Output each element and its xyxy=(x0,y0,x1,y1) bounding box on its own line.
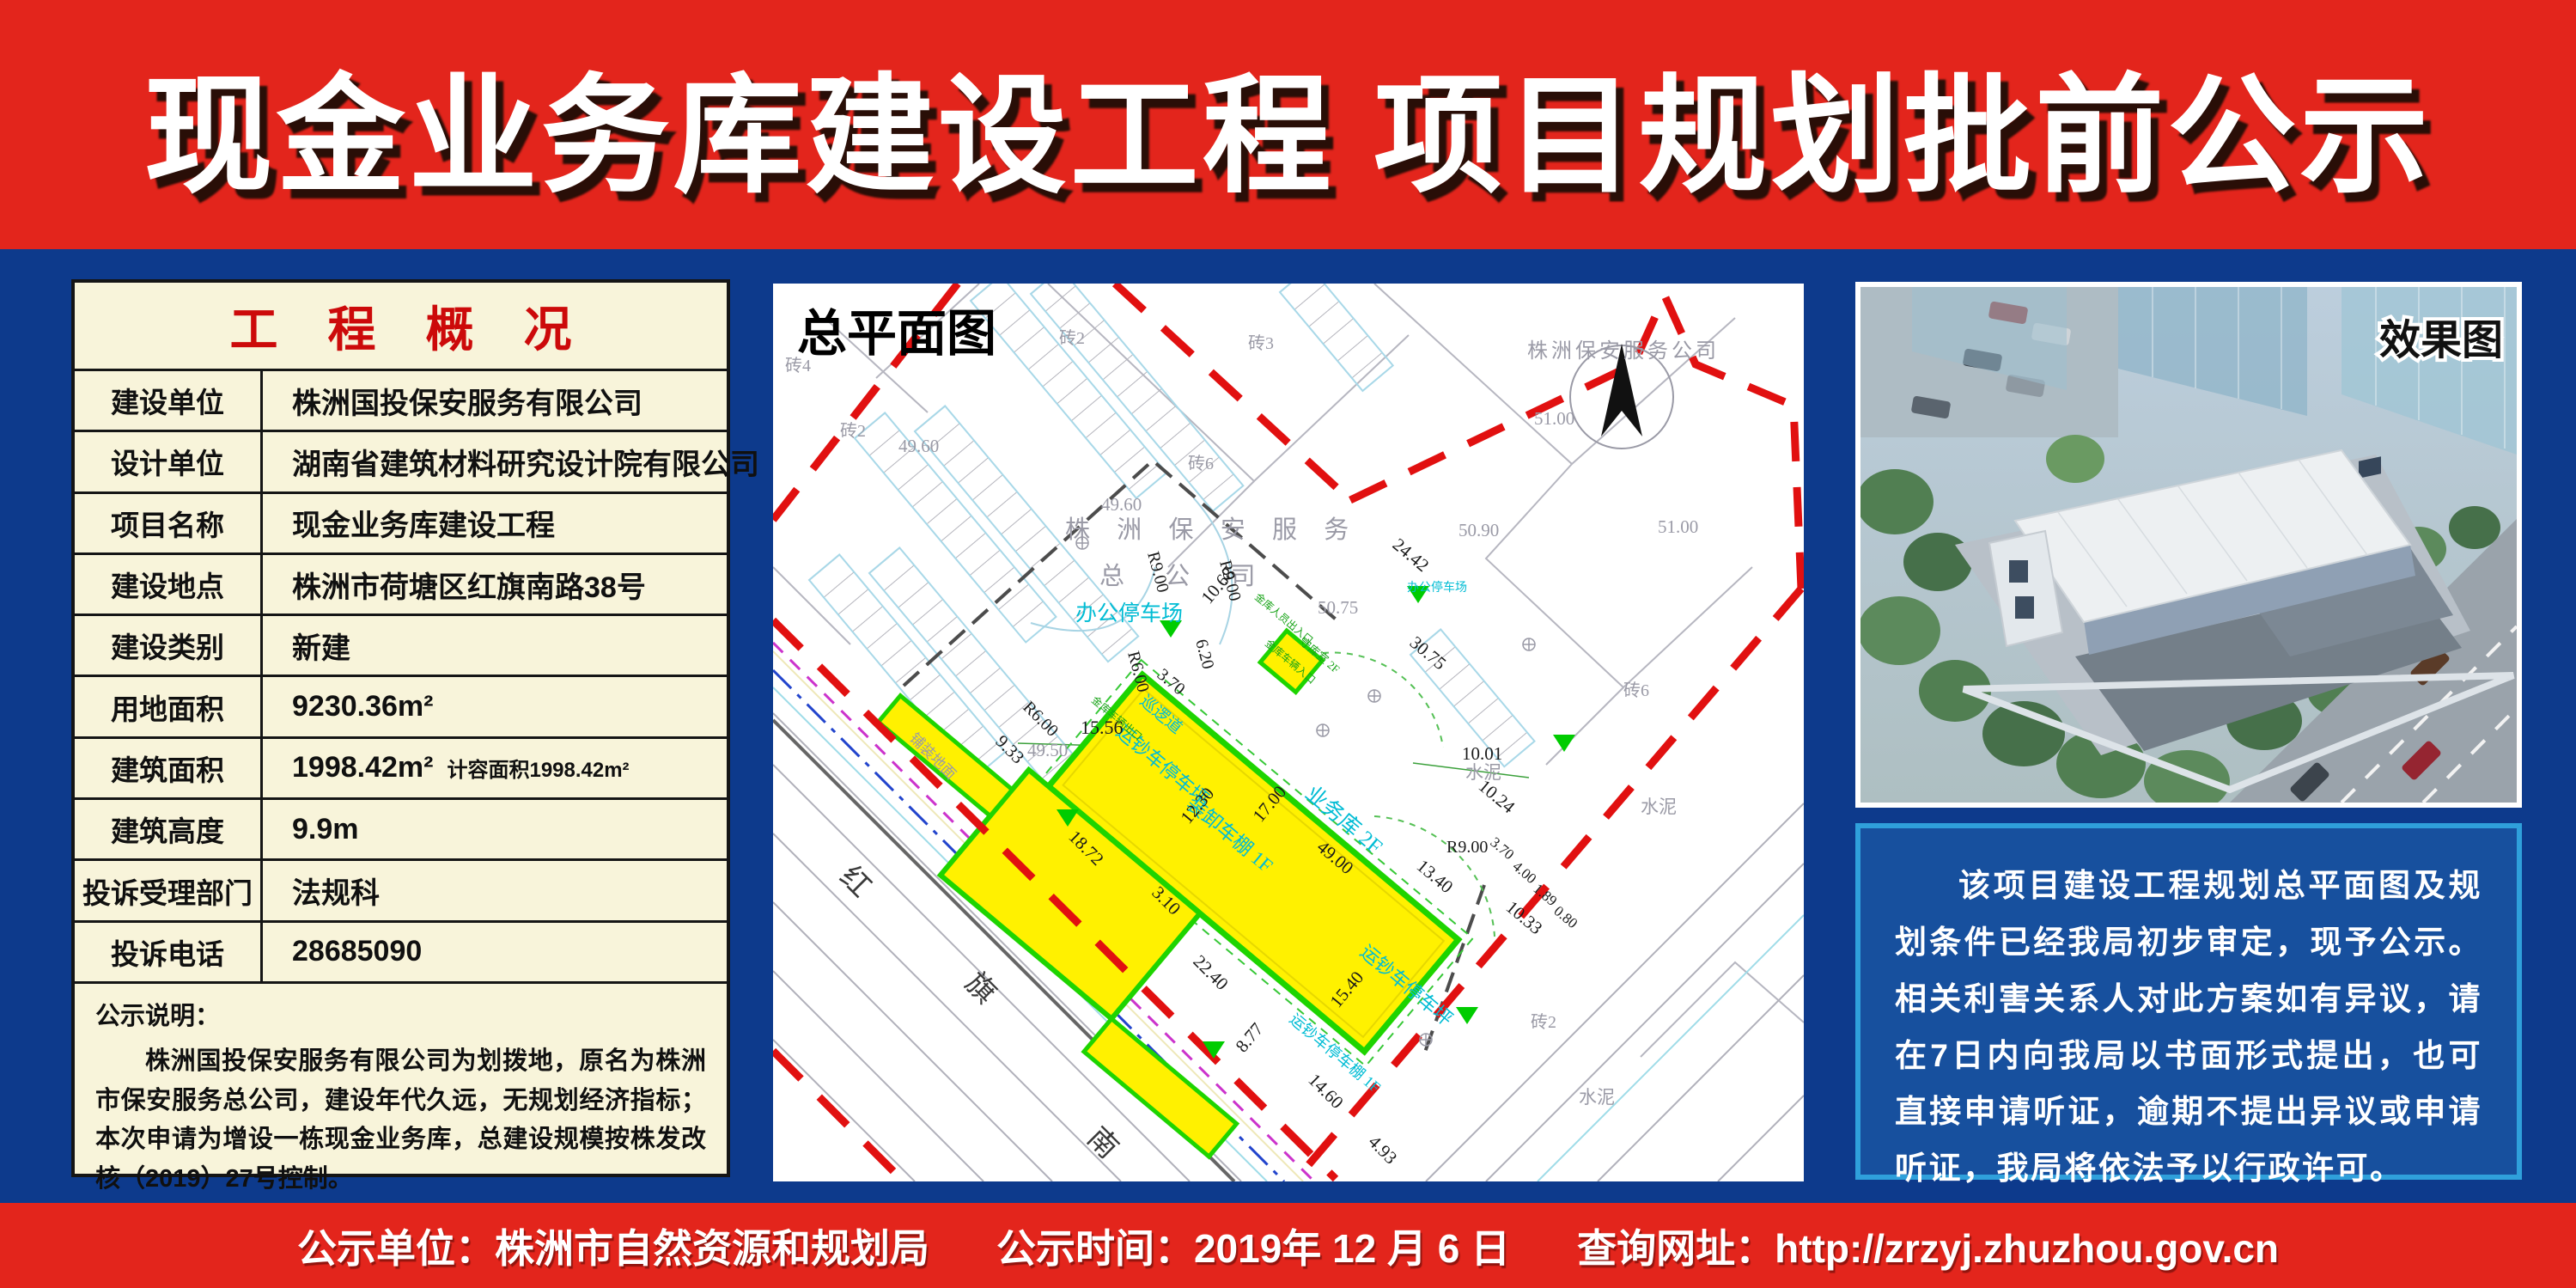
note-body: 株洲国投保安服务有限公司为划拨地，原名为株洲市保安服务总公司，建设年代久远，无规… xyxy=(95,1042,706,1199)
footer-unit-value: 株洲市自然资源和规划局 xyxy=(495,1226,929,1271)
row-value: 1998.42m²计容面积1998.42m² xyxy=(263,739,727,797)
floor-area-note: 计容面积1998.42m² xyxy=(447,753,629,783)
row-value: 法规科 xyxy=(263,861,727,919)
public-note: 公示说明： 株洲国投保安服务有限公司为划拨地，原名为株洲市保安服务总公司，建设年… xyxy=(75,984,727,1208)
row-label: 投诉受理部门 xyxy=(75,861,263,919)
footer-time: 公示时间：2019年 12 月 6 日 xyxy=(996,1218,1510,1274)
rendering-panel: 效果图 xyxy=(1855,282,2522,808)
row-value: 湖南省建筑材料研究设计院有限公司 xyxy=(263,432,759,491)
table-title: 工 程 概 况 xyxy=(75,283,727,371)
svg-text:51.00: 51.00 xyxy=(1658,516,1698,537)
approval-notice-box: 该项目建设工程规划总平面图及规划条件已经我局初步审定，现予公示。相关利害关系人对… xyxy=(1855,823,2522,1180)
svg-text:总 公 司: 总 公 司 xyxy=(1099,562,1273,590)
row-label: 建设地点 xyxy=(75,555,263,613)
svg-text:49.60: 49.60 xyxy=(898,436,939,456)
table-row: 建筑面积 1998.42m²计容面积1998.42m² xyxy=(75,739,727,800)
header-banner: 现金业务库建设工程 项目规划批前公示 xyxy=(0,0,2576,249)
site-plan-panel: 总平面图 株洲保安服务公司 株 洲 保 安 服 务 总 公 司 办公停车场 办公… xyxy=(773,284,1804,1181)
svg-text:砖3: 砖3 xyxy=(1248,333,1274,353)
rendering-title: 效果图 xyxy=(2379,318,2503,363)
row-label: 建设单位 xyxy=(75,371,263,430)
project-overview-table: 工 程 概 况 建设单位 株洲国投保安服务有限公司 设计单位 湖南省建筑材料研究… xyxy=(71,279,730,1177)
footer-url: 查询网址：http://zrzyj.zhuzhou.gov.cn xyxy=(1577,1218,2279,1274)
svg-text:砖2: 砖2 xyxy=(840,421,866,441)
table-row: 建设类别 新建 xyxy=(75,616,727,677)
row-value: 新建 xyxy=(263,616,727,675)
footer-time-value: 2019年 12 月 6 日 xyxy=(1194,1226,1510,1271)
row-value: 9.9m xyxy=(263,800,727,858)
note-title: 公示说明： xyxy=(95,998,706,1037)
svg-text:49.50: 49.50 xyxy=(1027,740,1068,760)
row-label: 建筑高度 xyxy=(75,800,263,858)
svg-text:水泥: 水泥 xyxy=(1579,1087,1615,1108)
svg-text:49.60: 49.60 xyxy=(1101,494,1142,515)
svg-text:办公停车场: 办公停车场 xyxy=(1407,580,1467,595)
table-row: 项目名称 现金业务库建设工程 xyxy=(75,494,727,555)
footer-time-label: 公示时间： xyxy=(996,1226,1194,1271)
row-value: 9230.36m² xyxy=(263,677,727,736)
table-row: 投诉电话 28685090 xyxy=(75,923,727,984)
svg-text:水泥: 水泥 xyxy=(1641,797,1677,817)
notice-body: 该项目建设工程规划总平面图及规划条件已经我局初步审定，现予公示。相关利害关系人对… xyxy=(1895,858,2482,1197)
floor-area-value: 1998.42m² xyxy=(292,751,433,784)
svg-text:砖2: 砖2 xyxy=(1059,328,1085,348)
svg-text:株洲保安服务公司: 株洲保安服务公司 xyxy=(1527,339,1720,363)
page-title: 现金业务库建设工程 项目规划批前公示 xyxy=(144,32,2433,218)
svg-text:10.01: 10.01 xyxy=(1462,743,1502,764)
row-value: 现金业务库建设工程 xyxy=(263,494,727,552)
rendering-image: 效果图 xyxy=(1860,287,2517,803)
row-value: 28685090 xyxy=(263,923,727,981)
table-row: 用地面积 9230.36m² xyxy=(75,677,727,738)
footer-url-label: 查询网址： xyxy=(1577,1226,1775,1271)
svg-text:株 洲 保 安 服 务: 株 洲 保 安 服 务 xyxy=(1065,516,1359,544)
footer-unit: 公示单位：株洲市自然资源和规划局 xyxy=(297,1218,929,1274)
site-plan-title: 总平面图 xyxy=(797,306,996,362)
table-row: 设计单位 湖南省建筑材料研究设计院有限公司 xyxy=(75,432,727,493)
footer-unit-label: 公示单位： xyxy=(297,1226,495,1271)
svg-text:砖2: 砖2 xyxy=(1531,1012,1556,1032)
table-row: 建筑高度 9.9m xyxy=(75,800,727,861)
svg-text:R9.00: R9.00 xyxy=(1446,838,1488,857)
table-row: 建设单位 株洲国投保安服务有限公司 xyxy=(75,371,727,432)
row-label: 投诉电话 xyxy=(75,923,263,981)
row-value: 株洲国投保安服务有限公司 xyxy=(263,371,727,430)
svg-text:51.00: 51.00 xyxy=(1534,408,1574,429)
svg-text:50.90: 50.90 xyxy=(1459,520,1499,540)
svg-text:50.75: 50.75 xyxy=(1318,597,1358,618)
svg-text:砖6: 砖6 xyxy=(1623,681,1649,700)
footer-url-value: http://zrzyj.zhuzhou.gov.cn xyxy=(1775,1226,2279,1271)
site-plan-drawing: 总平面图 株洲保安服务公司 株 洲 保 安 服 务 总 公 司 办公停车场 办公… xyxy=(773,284,1804,1181)
row-value: 株洲市荷塘区红旗南路38号 xyxy=(263,555,727,613)
svg-text:砖6: 砖6 xyxy=(1188,454,1214,473)
svg-text:办公停车场: 办公停车场 xyxy=(1075,601,1183,626)
row-label: 项目名称 xyxy=(75,494,263,552)
row-label: 建设类别 xyxy=(75,616,263,675)
notice-poster: 现金业务库建设工程 项目规划批前公示 工 程 概 况 建设单位 株洲国投保安服务… xyxy=(0,0,2576,1288)
svg-text:15.56: 15.56 xyxy=(1081,717,1124,738)
footer-banner: 公示单位：株洲市自然资源和规划局 公示时间：2019年 12 月 6 日 查询网… xyxy=(0,1203,2576,1288)
row-label: 用地面积 xyxy=(75,677,263,736)
row-label: 设计单位 xyxy=(75,432,263,491)
svg-text:砖4: 砖4 xyxy=(785,356,811,375)
table-row: 投诉受理部门 法规科 xyxy=(75,861,727,922)
row-label: 建筑面积 xyxy=(75,739,263,797)
table-row: 建设地点 株洲市荷塘区红旗南路38号 xyxy=(75,555,727,616)
